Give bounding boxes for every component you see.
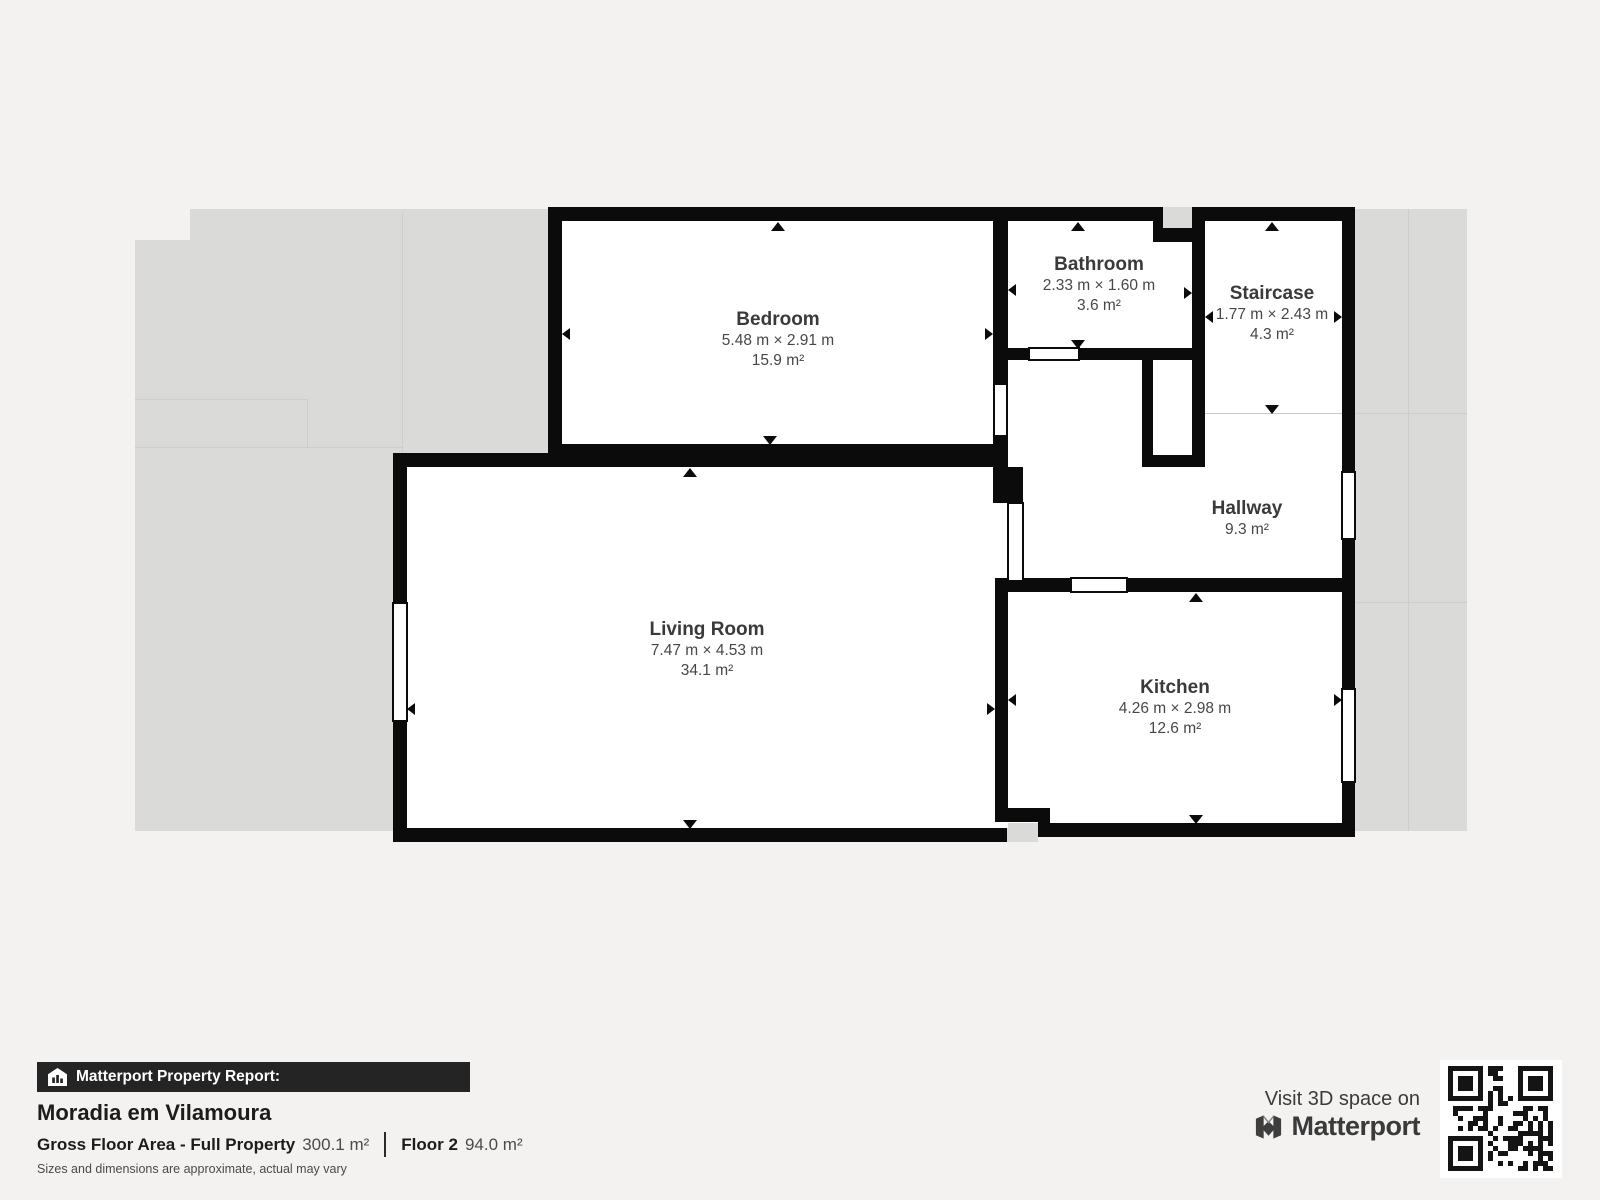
room-label-bedroom: Bedroom 5.48 m × 2.91 m 15.9 m² bbox=[722, 309, 834, 371]
door-opening bbox=[1007, 502, 1024, 582]
room-area: 12.6 m² bbox=[1119, 719, 1231, 739]
room-area: 34.1 m² bbox=[649, 661, 764, 681]
backdrop-shape bbox=[1007, 822, 1038, 842]
gross-floor-area-label: Gross Floor Area - Full Property bbox=[37, 1135, 295, 1155]
gross-floor-area-value: 300.1 m² bbox=[302, 1135, 369, 1155]
wall bbox=[993, 467, 1023, 503]
measure-arrow-left-icon bbox=[1008, 284, 1016, 296]
matterport-floorplan-page: Bedroom 5.48 m × 2.91 m 15.9 m² Bathroom… bbox=[0, 0, 1600, 1200]
room-label-kitchen: Kitchen 4.26 m × 2.98 m 12.6 m² bbox=[1119, 677, 1231, 739]
measure-arrow-left-icon bbox=[1008, 694, 1016, 706]
backdrop-line bbox=[135, 447, 402, 448]
visit-3d-space-text: Visit 3D space on bbox=[1265, 1088, 1420, 1111]
door-opening bbox=[1028, 347, 1080, 361]
wall bbox=[548, 207, 562, 458]
measure-arrow-left-icon bbox=[1205, 311, 1213, 323]
measure-arrow-down-icon bbox=[1189, 815, 1203, 824]
room-name: Staircase bbox=[1216, 283, 1328, 305]
wall bbox=[1192, 207, 1355, 221]
room-area: 15.9 m² bbox=[722, 351, 834, 371]
window bbox=[993, 383, 1008, 437]
backdrop-notch bbox=[1163, 207, 1192, 228]
report-banner-label: Matterport Property Report: bbox=[76, 1068, 280, 1086]
room-dimensions: 4.26 m × 2.98 m bbox=[1119, 699, 1231, 719]
wall bbox=[393, 828, 1007, 842]
room-area: 9.3 m² bbox=[1212, 520, 1283, 540]
measure-arrow-up-icon bbox=[1071, 222, 1085, 231]
room-label-hallway: Hallway 9.3 m² bbox=[1212, 498, 1283, 540]
room-dimensions: 1.77 m × 2.43 m bbox=[1216, 305, 1328, 325]
floor-value: 94.0 m² bbox=[465, 1135, 523, 1155]
room-label-staircase: Staircase 1.77 m × 2.43 m 4.3 m² bbox=[1216, 283, 1328, 345]
floor-label: Floor 2 bbox=[401, 1135, 458, 1155]
floor-plan: Bedroom 5.48 m × 2.91 m 15.9 m² Bathroom… bbox=[0, 0, 1600, 1200]
wall bbox=[1038, 823, 1355, 837]
property-title: Moradia em Vilamoura bbox=[37, 1100, 271, 1126]
disclaimer-text: Sizes and dimensions are approximate, ac… bbox=[37, 1162, 347, 1176]
measure-arrow-up-icon bbox=[683, 468, 697, 477]
room-name: Living Room bbox=[649, 619, 764, 641]
measure-arrow-up-icon bbox=[1265, 222, 1279, 231]
measure-arrow-down-icon bbox=[763, 436, 777, 445]
wall bbox=[1192, 207, 1205, 467]
wall bbox=[995, 592, 1008, 822]
room-area: 3.6 m² bbox=[1043, 296, 1155, 316]
matterport-brand: Matterport bbox=[1253, 1111, 1421, 1142]
wall bbox=[993, 348, 1192, 360]
backdrop-line bbox=[135, 399, 307, 400]
room-hallway bbox=[1008, 360, 1205, 578]
matterport-wordmark: Matterport bbox=[1292, 1111, 1421, 1142]
measure-arrow-right-icon bbox=[985, 328, 993, 340]
wall bbox=[1142, 360, 1153, 455]
backdrop-line bbox=[1408, 209, 1409, 831]
room-label-bathroom: Bathroom 2.33 m × 1.60 m 3.6 m² bbox=[1043, 254, 1155, 316]
room-dimensions: 2.33 m × 1.60 m bbox=[1043, 276, 1155, 296]
backdrop-line bbox=[1355, 602, 1467, 603]
wall bbox=[548, 207, 1153, 221]
window bbox=[392, 602, 408, 722]
measure-arrow-up-icon bbox=[1189, 593, 1203, 602]
door-opening bbox=[1070, 577, 1128, 593]
matterport-logo-icon bbox=[1253, 1111, 1284, 1142]
measure-arrow-down-icon bbox=[683, 820, 697, 829]
report-banner: Matterport Property Report: bbox=[37, 1062, 470, 1092]
room-name: Kitchen bbox=[1119, 677, 1231, 699]
property-report-house-icon bbox=[48, 1068, 67, 1086]
wall bbox=[393, 453, 993, 467]
room-area: 4.3 m² bbox=[1216, 325, 1328, 345]
measure-arrow-up-icon bbox=[771, 222, 785, 231]
qr-code[interactable] bbox=[1448, 1066, 1553, 1171]
measure-arrow-right-icon bbox=[1334, 694, 1342, 706]
room-dimensions: 7.47 m × 4.53 m bbox=[649, 641, 764, 661]
room-name: Bedroom bbox=[722, 309, 834, 331]
backdrop-line bbox=[307, 399, 308, 447]
window bbox=[1341, 688, 1356, 783]
qr-card bbox=[1440, 1060, 1562, 1178]
backdrop-line bbox=[1355, 413, 1467, 414]
room-name: Hallway bbox=[1212, 498, 1283, 520]
measure-arrow-down-icon bbox=[1265, 405, 1279, 414]
window bbox=[1341, 471, 1356, 540]
room-dimensions: 5.48 m × 2.91 m bbox=[722, 331, 834, 351]
backdrop-line bbox=[402, 213, 403, 453]
wall bbox=[1142, 455, 1205, 467]
wall bbox=[1153, 228, 1192, 242]
measure-arrow-right-icon bbox=[987, 703, 995, 715]
measure-arrow-right-icon bbox=[1334, 311, 1342, 323]
measure-arrow-down-icon bbox=[1071, 340, 1085, 349]
stats-divider bbox=[384, 1132, 386, 1157]
measure-arrow-left-icon bbox=[562, 328, 570, 340]
measure-arrow-right-icon bbox=[1184, 287, 1192, 299]
room-label-living-room: Living Room 7.47 m × 4.53 m 34.1 m² bbox=[649, 619, 764, 681]
measure-arrow-left-icon bbox=[407, 703, 415, 715]
room-name: Bathroom bbox=[1043, 254, 1155, 276]
floor-area-stats: Gross Floor Area - Full Property 300.1 m… bbox=[37, 1132, 523, 1157]
wall bbox=[995, 578, 1342, 592]
